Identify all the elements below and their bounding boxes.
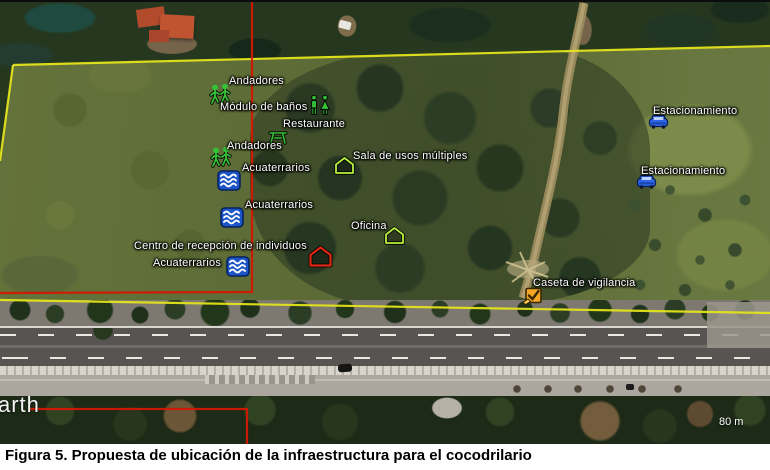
road-asphalt <box>0 326 770 366</box>
placemark-label: Centro de recepción de individuos <box>134 241 307 252</box>
placemark-label: Andadores <box>227 141 282 152</box>
home-icon-red <box>308 245 333 273</box>
sidewalk <box>0 375 770 396</box>
road-curb <box>0 366 770 375</box>
placemark-label: Módulo de baños <box>220 102 307 113</box>
scale-label: 80 m <box>719 416 743 428</box>
google-earth-watermark: arth <box>0 392 40 418</box>
small-vehicle <box>626 384 634 390</box>
waves-icon <box>220 207 244 233</box>
placemark-label: Acuaterrarios <box>153 258 221 269</box>
figure-top-border <box>0 0 770 2</box>
road-shoulder-trees <box>0 300 770 328</box>
placemark-label: Sala de usos múltiples <box>353 151 467 162</box>
bush-cluster <box>615 175 770 310</box>
road-median <box>0 345 770 348</box>
placemark-label: Caseta de vigilancia <box>533 278 635 289</box>
concrete-slab <box>707 302 770 348</box>
placemark-label: Acuaterrarios <box>242 163 310 174</box>
placemark-label: Oficina <box>351 221 387 232</box>
placemark-label: Estacionamiento <box>641 166 725 177</box>
placemark-label: Acuaterrarios <box>245 200 313 211</box>
waves-icon <box>226 256 250 282</box>
building-roof <box>149 30 169 42</box>
car-on-road <box>338 364 353 373</box>
home-icon <box>334 156 355 180</box>
tools-icon <box>521 286 543 310</box>
lane-dashes <box>0 334 770 336</box>
road-edge-line <box>0 326 770 328</box>
placemark-label: Andadores <box>229 76 284 87</box>
placemark-label: Estacionamiento <box>653 106 737 117</box>
curb-hatching <box>205 375 315 384</box>
placemark-label: Restaurante <box>283 119 345 130</box>
car-icon <box>648 114 669 134</box>
figure-caption: Figura 5. Propuesta de ubicación de la i… <box>5 447 767 464</box>
home-icon <box>384 226 405 250</box>
road <box>0 300 770 444</box>
satellite-map: Andadores Módulo de baños <box>0 0 770 444</box>
restroom-icon <box>307 94 333 121</box>
figure-container: Andadores Módulo de baños <box>0 0 770 470</box>
waves-icon <box>217 170 241 196</box>
car-icon <box>636 174 657 194</box>
lane-dashes <box>0 357 770 359</box>
roadside-trees <box>0 396 770 444</box>
